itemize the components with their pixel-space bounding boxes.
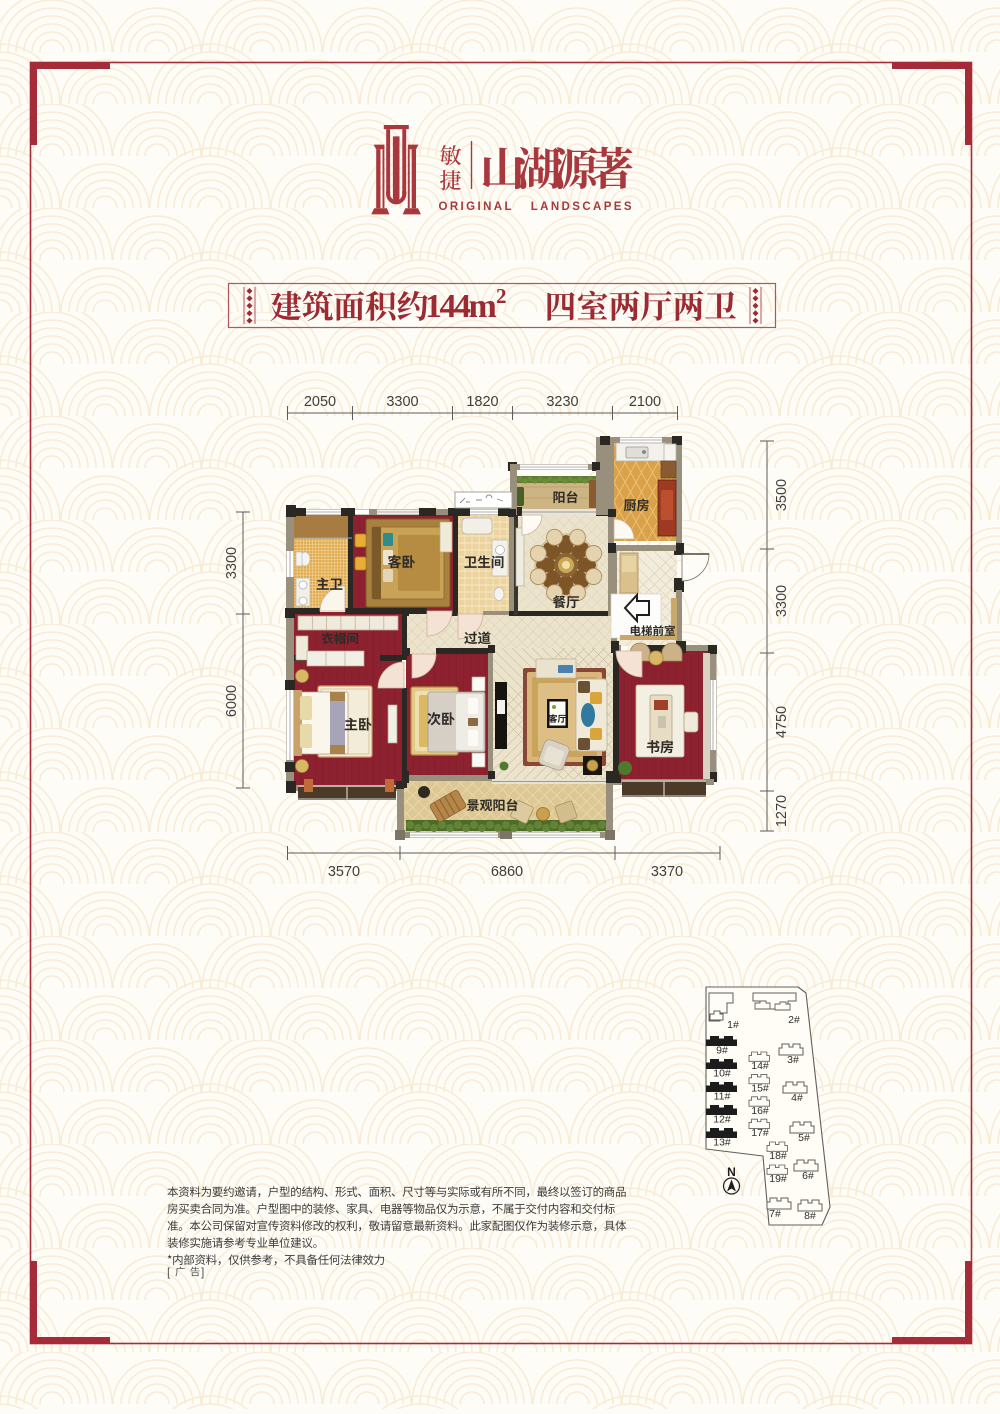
svg-text:3500: 3500 xyxy=(774,479,790,511)
svg-text:3300: 3300 xyxy=(224,547,240,579)
svg-text:19#: 19# xyxy=(769,1173,787,1185)
svg-text:2100: 2100 xyxy=(629,394,661,410)
svg-text:6000: 6000 xyxy=(224,685,240,717)
svg-text:N: N xyxy=(727,1165,736,1179)
svg-text:12#: 12# xyxy=(713,1114,731,1126)
svg-text:10#: 10# xyxy=(713,1068,731,1080)
svg-text:9#: 9# xyxy=(716,1045,728,1057)
svg-text:2: 2 xyxy=(496,284,507,308)
svg-text:4750: 4750 xyxy=(774,706,790,738)
svg-text:1270: 1270 xyxy=(774,795,790,827)
svg-text:15#: 15# xyxy=(751,1082,769,1094)
svg-text:144m: 144m xyxy=(425,288,497,325)
svg-text:5#: 5# xyxy=(798,1132,810,1144)
svg-text:17#: 17# xyxy=(751,1127,769,1139)
svg-text:7#: 7# xyxy=(769,1208,781,1220)
svg-text:14#: 14# xyxy=(751,1060,769,1072)
svg-text:3300: 3300 xyxy=(386,394,418,410)
svg-text:3#: 3# xyxy=(787,1054,799,1066)
svg-text:8#: 8# xyxy=(804,1210,816,1222)
svg-text:3230: 3230 xyxy=(546,394,578,410)
svg-text:6860: 6860 xyxy=(491,864,523,880)
svg-text:2050: 2050 xyxy=(304,394,336,410)
svg-text:16#: 16# xyxy=(751,1105,769,1117)
svg-text:2#: 2# xyxy=(788,1014,800,1026)
svg-text:11#: 11# xyxy=(714,1091,731,1103)
svg-text:]: ] xyxy=(201,1265,204,1279)
svg-text:18#: 18# xyxy=(769,1150,787,1162)
svg-text:3370: 3370 xyxy=(651,864,683,880)
svg-text:13#: 13# xyxy=(713,1137,731,1149)
svg-text:ORIGINAL LANDSCAPES: ORIGINAL LANDSCAPES xyxy=(439,201,634,213)
svg-text:3300: 3300 xyxy=(774,585,790,617)
svg-text:1820: 1820 xyxy=(466,394,498,410)
svg-text:1#: 1# xyxy=(727,1019,739,1031)
svg-text:4#: 4# xyxy=(791,1092,803,1104)
svg-text:6#: 6# xyxy=(802,1170,814,1182)
svg-text:3570: 3570 xyxy=(328,864,360,880)
